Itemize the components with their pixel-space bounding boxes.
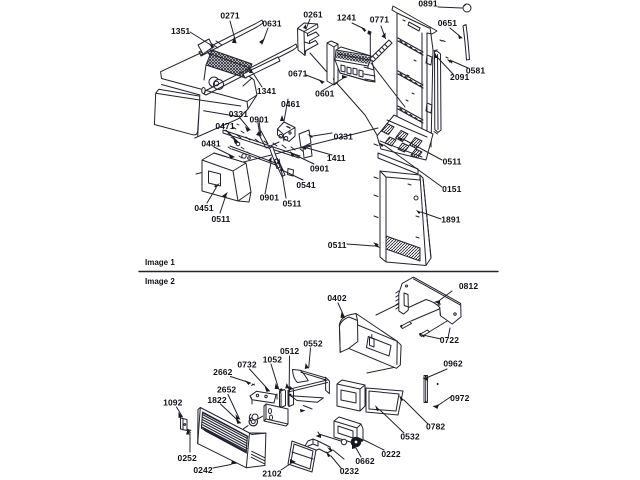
svg-text:1241: 1241: [337, 13, 356, 23]
svg-text:0722: 0722: [440, 335, 459, 345]
svg-text:0331: 0331: [334, 132, 353, 142]
svg-text:1891: 1891: [441, 215, 460, 225]
svg-text:0631: 0631: [262, 18, 281, 28]
svg-text:2652: 2652: [217, 384, 236, 394]
svg-text:0451: 0451: [194, 203, 213, 213]
svg-text:0331: 0331: [229, 109, 248, 119]
svg-text:0222: 0222: [381, 449, 400, 459]
svg-text:0261: 0261: [303, 9, 322, 19]
svg-text:0901: 0901: [249, 115, 268, 125]
svg-text:0771: 0771: [370, 15, 389, 25]
svg-text:0471: 0471: [215, 121, 234, 131]
svg-text:1341: 1341: [257, 86, 276, 96]
svg-text:0601: 0601: [315, 89, 334, 99]
svg-text:0812: 0812: [459, 281, 478, 291]
svg-text:Image 2: Image 2: [145, 277, 175, 286]
svg-text:0511: 0511: [443, 157, 462, 167]
svg-text:0552: 0552: [303, 339, 322, 349]
svg-text:2662: 2662: [213, 367, 232, 377]
svg-text:0511: 0511: [211, 214, 230, 224]
svg-text:1822: 1822: [207, 395, 226, 405]
svg-text:Image 1: Image 1: [145, 258, 175, 267]
svg-text:0402: 0402: [327, 293, 346, 303]
svg-text:2102: 2102: [262, 468, 281, 478]
svg-text:1052: 1052: [263, 354, 282, 364]
svg-text:1092: 1092: [163, 397, 182, 407]
svg-text:0662: 0662: [355, 456, 374, 466]
svg-text:0252: 0252: [178, 453, 197, 463]
svg-text:0901: 0901: [260, 193, 279, 203]
svg-text:0461: 0461: [281, 99, 300, 109]
svg-text:0901: 0901: [310, 163, 329, 173]
svg-text:0232: 0232: [340, 466, 359, 476]
svg-text:0541: 0541: [296, 180, 315, 190]
svg-text:0532: 0532: [400, 432, 419, 442]
svg-text:0891: 0891: [418, 0, 437, 9]
svg-text:0271: 0271: [220, 11, 239, 21]
svg-text:0972: 0972: [450, 393, 469, 403]
svg-text:1351: 1351: [171, 26, 190, 36]
svg-text:0481: 0481: [201, 138, 220, 148]
svg-text:2091: 2091: [450, 72, 469, 82]
svg-text:0511: 0511: [283, 199, 302, 209]
svg-text:0511: 0511: [328, 240, 347, 250]
svg-text:0242: 0242: [193, 465, 212, 475]
svg-text:0782: 0782: [426, 421, 445, 431]
svg-text:1411: 1411: [327, 153, 346, 163]
svg-text:0962: 0962: [443, 359, 462, 369]
svg-text:0651: 0651: [438, 18, 457, 28]
svg-text:0151: 0151: [442, 184, 461, 194]
svg-text:0512: 0512: [280, 346, 299, 356]
svg-text:0732: 0732: [237, 359, 256, 369]
svg-text:0671: 0671: [288, 68, 307, 78]
